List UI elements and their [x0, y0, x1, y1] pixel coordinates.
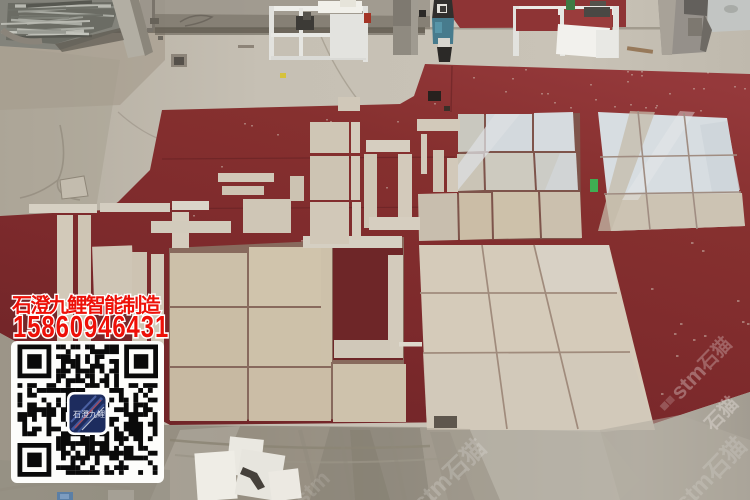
svg-text:15860946431: 15860946431 — [13, 309, 169, 344]
svg-text:石澄九鲤: 石澄九鲤 — [73, 409, 105, 419]
